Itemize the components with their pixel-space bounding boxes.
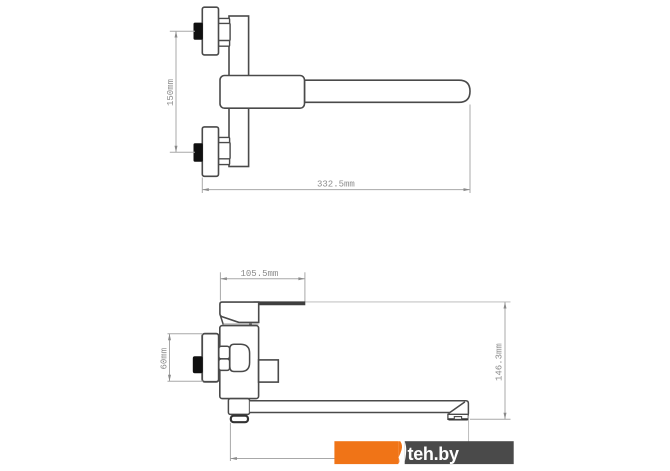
svg-text:332.5mm: 332.5mm bbox=[317, 179, 355, 189]
svg-text:teh.by: teh.by bbox=[408, 444, 459, 464]
svg-text:146.3mm: 146.3mm bbox=[495, 343, 505, 381]
svg-text:60mm: 60mm bbox=[159, 348, 169, 370]
svg-text:150mm: 150mm bbox=[166, 79, 176, 106]
svg-text:105.5mm: 105.5mm bbox=[241, 269, 279, 279]
